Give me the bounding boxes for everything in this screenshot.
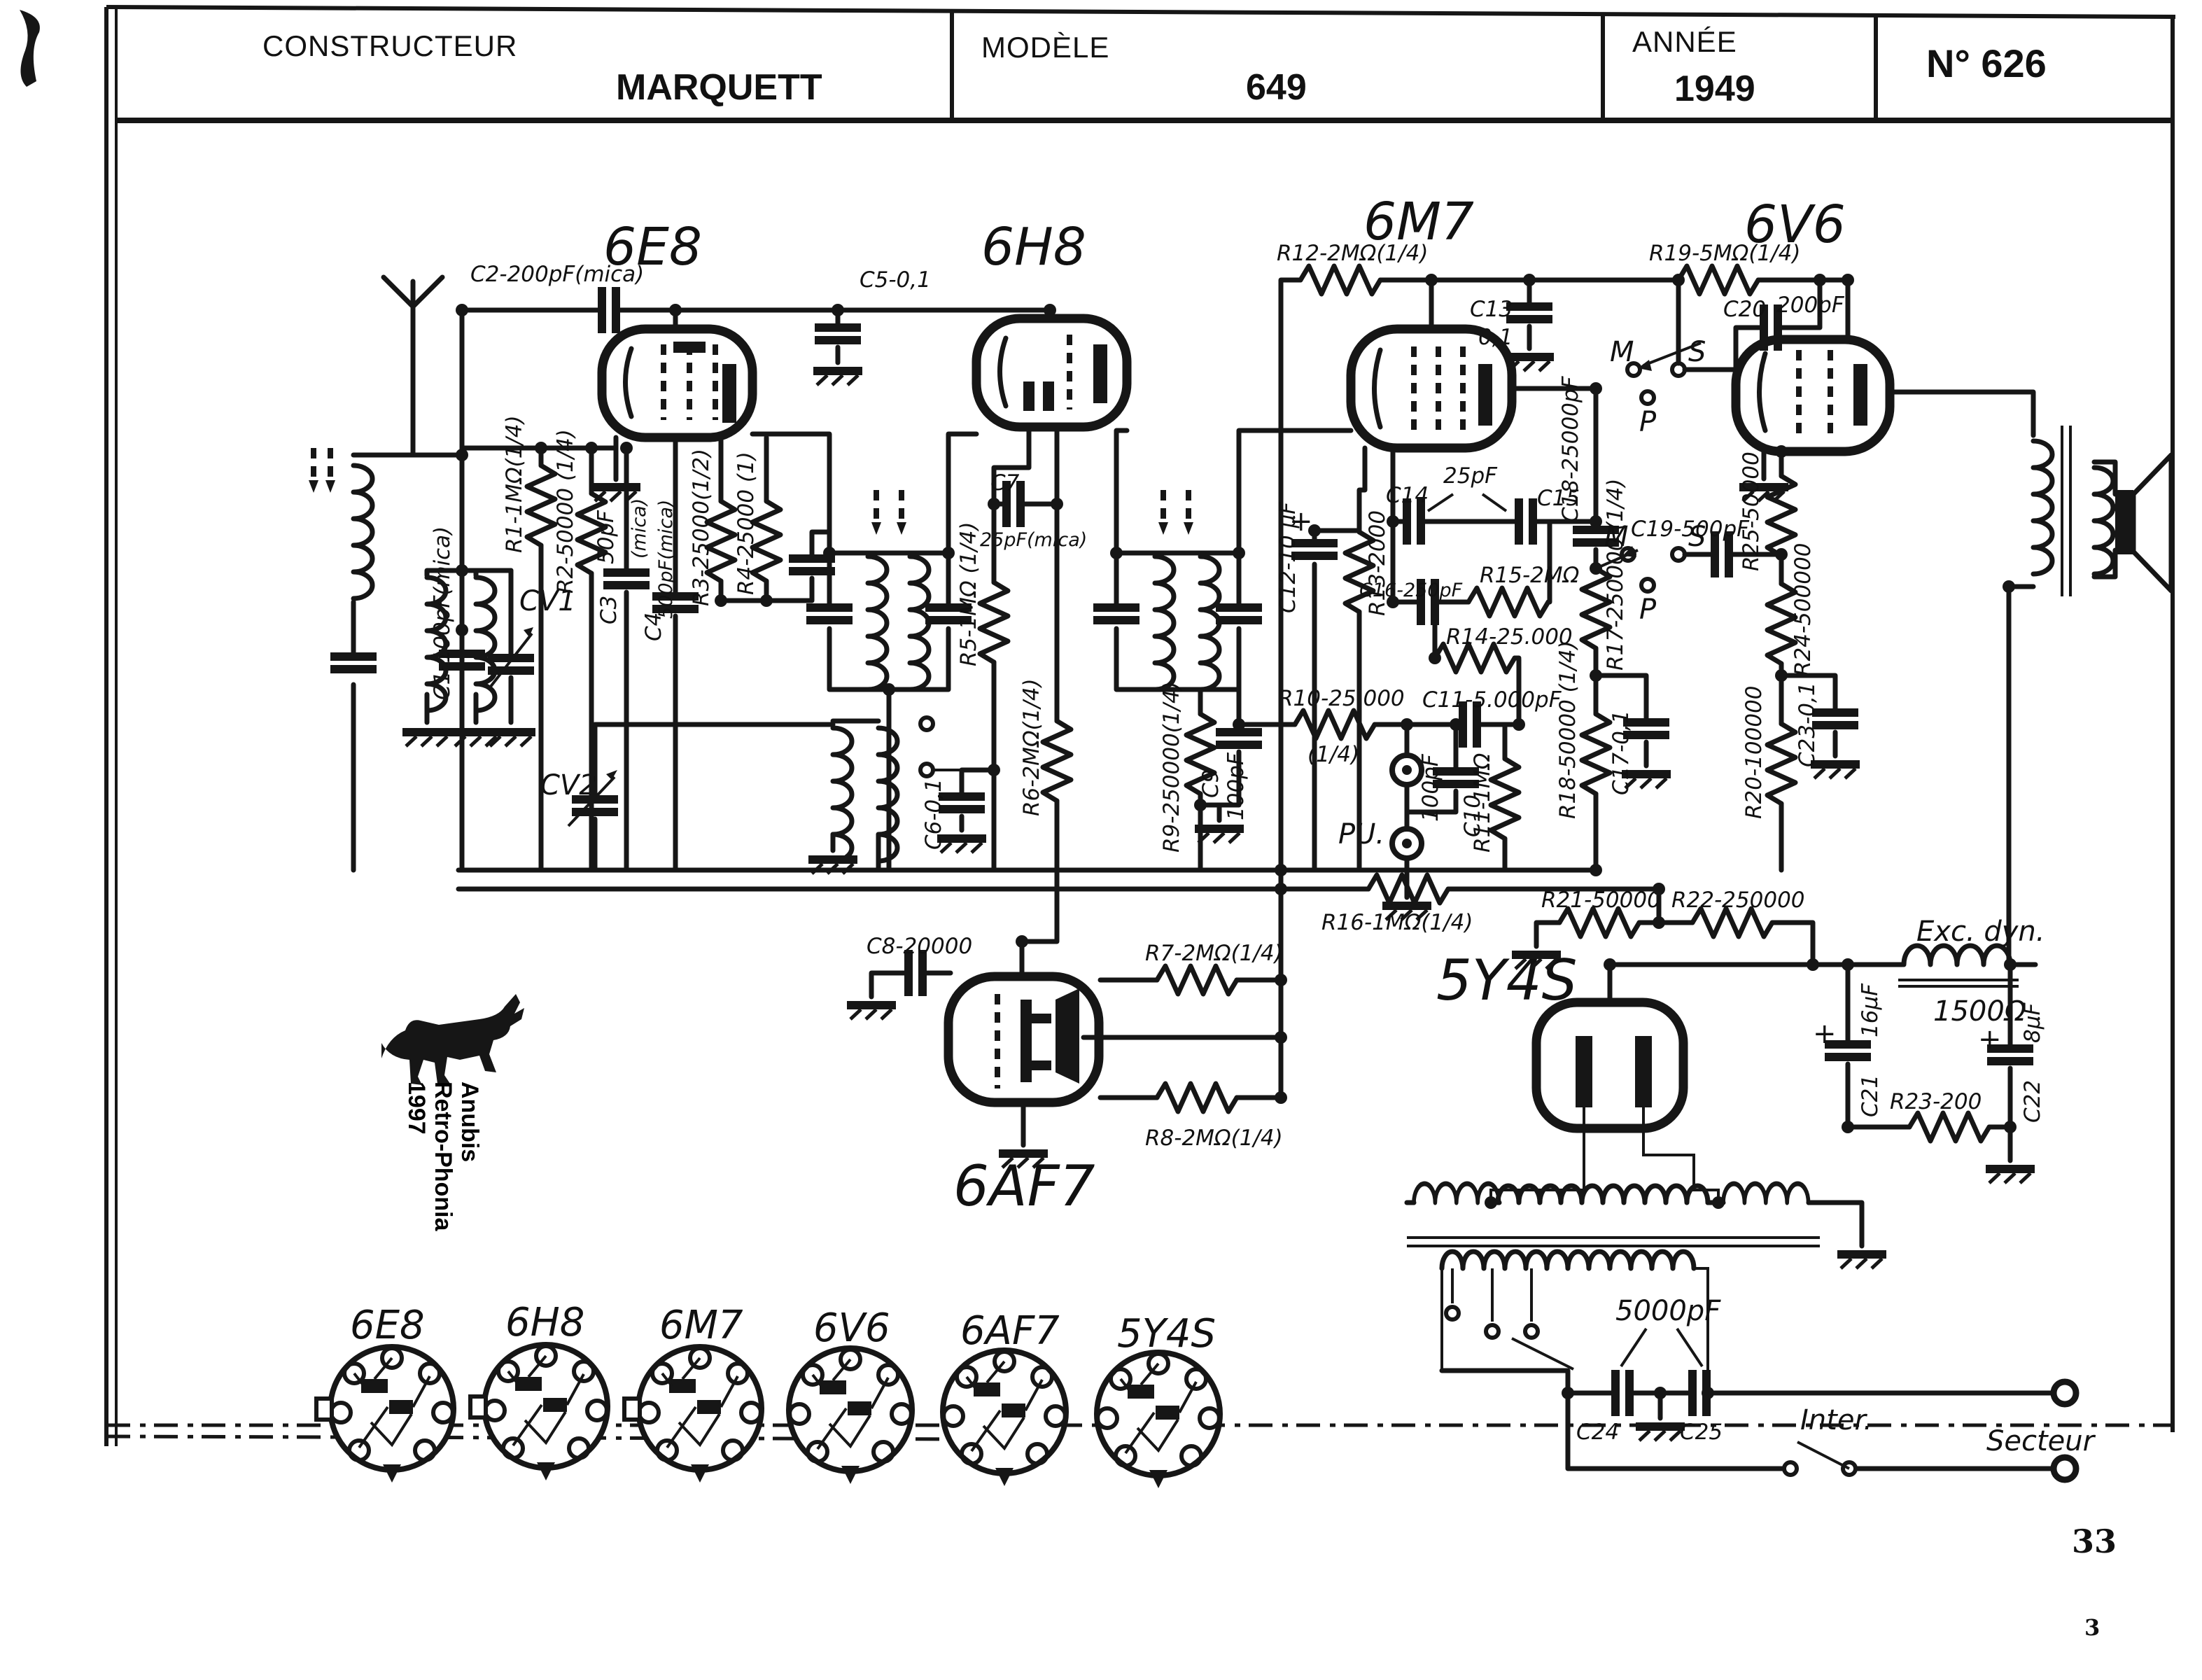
annee-value: 1949 xyxy=(1674,69,1755,109)
socket-6h8 xyxy=(484,1345,608,1480)
page-subnumber: 3 xyxy=(2084,1614,2100,1641)
tube-5y4s xyxy=(1536,1002,1683,1128)
ink-blot xyxy=(20,10,40,87)
label-sw2-m: M xyxy=(1604,521,1629,553)
label-secteur: Secteur xyxy=(1986,1425,2096,1457)
label-c7: C7 xyxy=(990,470,1020,496)
label-r24: R24-500000 xyxy=(1790,542,1816,676)
label-c23: C23-0,1 xyxy=(1795,682,1820,767)
label-c9-val: 100pF xyxy=(1223,752,1249,820)
label-c8: C8-20000 xyxy=(867,934,972,959)
label-exc: Exc. dyn. xyxy=(1916,916,2045,948)
label-r2: R2-50000 (1/4) xyxy=(553,429,578,594)
label-r18: R18-50000 (1/4) xyxy=(1555,640,1580,819)
label-cv2: CV2 xyxy=(540,769,597,801)
stage-6af7: C8-20000 R7-2MΩ(1/4) R8-2MΩ(1/4) xyxy=(847,934,1283,1168)
numero-value: N° 626 xyxy=(1926,41,2047,85)
constructeur-label: CONSTRUCTEUR xyxy=(262,29,517,62)
label-r16: R16-1MΩ(1/4) xyxy=(1321,910,1473,935)
label-r5: R5-1MΩ (1/4) xyxy=(956,521,981,666)
label-r21: R21-50000 xyxy=(1541,888,1661,913)
label-c11: C11-5.000pF xyxy=(1422,687,1562,713)
label-c3: C3 xyxy=(596,596,622,624)
bus-lines: R16-1MΩ(1/4) R21-50000 R22-250000 xyxy=(458,870,1813,969)
label-r19: R19-5MΩ(1/4) xyxy=(1649,241,1800,266)
label-c3-val: 50pF xyxy=(594,510,619,564)
socket-label-6e8: 6E8 xyxy=(350,1303,425,1348)
watermark-line2: Retro-Phonia xyxy=(430,1081,456,1232)
label-c4-val: 500pF(mica) xyxy=(655,500,677,619)
label-r4: R4-25000 (1) xyxy=(734,451,759,595)
label-r20: R20-100000 xyxy=(1741,685,1767,819)
modele-label: MODÈLE xyxy=(981,31,1109,64)
label-c20: C20 xyxy=(1723,297,1766,322)
label-c2: C2-200pF(mica) xyxy=(470,262,644,287)
label-r17: R17-250000 (1/4) xyxy=(1603,479,1628,671)
label-c22-val: 8µF xyxy=(2020,1002,2045,1043)
label-c20-val: 200pF xyxy=(1776,293,1845,318)
socket-label-6m7: 6M7 xyxy=(659,1303,743,1348)
label-sw1-m: M xyxy=(1610,336,1634,368)
socket-6v6 xyxy=(789,1348,912,1484)
secteur-terminal-top xyxy=(2054,1382,2076,1404)
label-c17: C17-0,1 xyxy=(1608,710,1634,795)
label-c14: C14 xyxy=(1386,483,1429,508)
label-r9: R9-250000(1/4) xyxy=(1159,681,1184,853)
watermark-line3: 1997 xyxy=(403,1081,430,1135)
label-c22: C22 xyxy=(2020,1080,2045,1123)
page-number: 33 xyxy=(2072,1522,2117,1560)
speaker-icon xyxy=(2115,490,2133,554)
socket-6e8 xyxy=(330,1347,454,1483)
label-c25: C25 xyxy=(1680,1420,1723,1445)
label-sw1-s: S xyxy=(1688,336,1706,368)
label-c13: C13 xyxy=(1470,297,1513,322)
label-c5: C5-0,1 xyxy=(860,267,931,293)
band-switch-1: M S P xyxy=(1529,280,1706,438)
label-r10: R10-25.000 xyxy=(1278,686,1405,711)
label-c10-val: 100pF xyxy=(1418,753,1443,822)
label-r23: R23-200 xyxy=(1890,1089,1982,1114)
label-r7: R7-2MΩ(1/4) xyxy=(1145,941,1283,966)
watermark-line1: Anubis xyxy=(456,1081,483,1162)
tube-title-6h8: 6H8 xyxy=(981,217,1086,277)
label-c22-plus: + xyxy=(1978,1023,2002,1056)
label-sw2-p: P xyxy=(1639,594,1657,626)
socket-label-5y4s: 5Y4S xyxy=(1117,1311,1216,1357)
label-c3-note: (mica) xyxy=(629,498,650,559)
label-c21-plus: + xyxy=(1813,1018,1837,1050)
label-c14-15-val: 25pF xyxy=(1443,463,1498,489)
label-c21-val: 16µF xyxy=(1858,983,1883,1037)
schematic-canvas: CONSTRUCTEUR MARQUETT MODÈLE 649 ANNÉE 1… xyxy=(0,0,2202,1680)
socket-6m7 xyxy=(638,1347,762,1483)
label-sw1-p: P xyxy=(1639,406,1657,438)
label-c6: C6-0,1 xyxy=(921,778,946,850)
label-c21: C21 xyxy=(1858,1074,1883,1117)
secteur-terminal-bottom xyxy=(2054,1457,2076,1480)
label-c12: C12-10 µF xyxy=(1275,501,1300,613)
label-r25: R25-50000 xyxy=(1739,451,1764,571)
label-c15: C15 xyxy=(1537,486,1580,511)
label-inter: Inter. xyxy=(1800,1404,1872,1436)
label-c9: C9 xyxy=(1198,769,1223,798)
stage-6v6: R19-5MΩ(1/4) C20 200pF C19-500pF R25-500… xyxy=(1631,241,2171,965)
socket-diagrams: 6E8 6H8 6M7 6V6 6AF7 5Y4S xyxy=(316,1300,1220,1488)
scanned-schematic-page: CONSTRUCTEUR MARQUETT MODÈLE 649 ANNÉE 1… xyxy=(0,0,2202,1680)
label-r8: R8-2MΩ(1/4) xyxy=(1145,1126,1283,1151)
antenna-icon xyxy=(384,277,462,455)
label-c24: C24 xyxy=(1576,1420,1619,1445)
label-r1: R1-1MΩ(1/4) xyxy=(502,415,527,553)
label-c16: C16-250pF xyxy=(1359,580,1463,601)
label-r6: R6-2MΩ(1/4) xyxy=(1019,678,1044,816)
annee-label: ANNÉE xyxy=(1632,25,1737,58)
label-r12: R12-2MΩ(1/4) xyxy=(1277,241,1428,266)
label-r3: R3-25000(1/2) xyxy=(689,449,714,606)
socket-6af7 xyxy=(943,1350,1066,1486)
socket-5y4s xyxy=(1097,1352,1220,1488)
anubis-dog-icon xyxy=(381,994,524,1085)
label-r11: R11-1MΩ xyxy=(1470,752,1495,853)
watermark: Anubis Retro-Phonia 1997 xyxy=(381,994,524,1232)
label-r14: R14-25.000 xyxy=(1446,624,1573,650)
constructeur-value: MARQUETT xyxy=(616,67,822,108)
label-r22: R22-250000 xyxy=(1671,888,1805,913)
header-table: CONSTRUCTEUR MARQUETT MODÈLE 649 ANNÉE 1… xyxy=(116,11,2173,120)
label-c19: C19-500pF xyxy=(1631,517,1750,542)
modele-value: 649 xyxy=(1246,67,1307,108)
socket-label-6v6: 6V6 xyxy=(813,1305,890,1351)
socket-label-6h8: 6H8 xyxy=(505,1300,584,1345)
label-c24-25-val: 5000pF xyxy=(1615,1295,1721,1327)
label-r15: R15-2MΩ xyxy=(1480,563,1580,588)
socket-label-6af7: 6AF7 xyxy=(960,1308,1060,1354)
